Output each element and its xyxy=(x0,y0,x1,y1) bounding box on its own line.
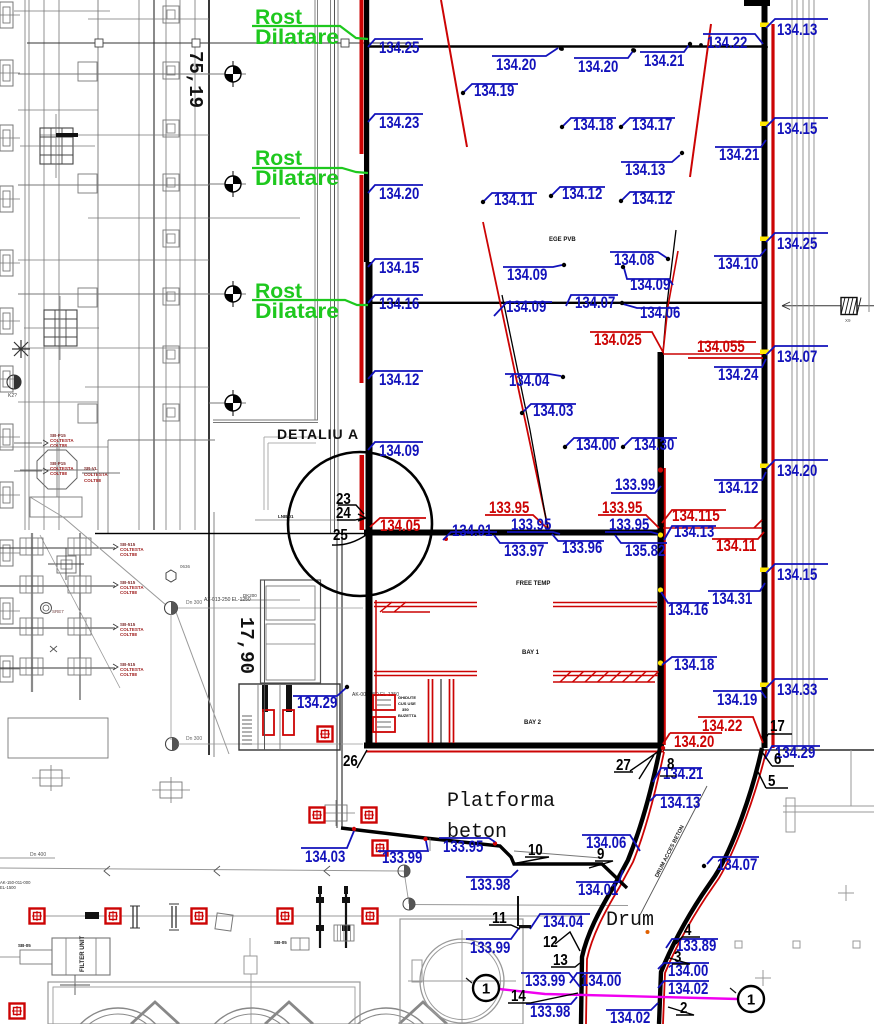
svg-text:133.95: 133.95 xyxy=(511,515,551,534)
svg-text:SB-05: SB-05 xyxy=(274,940,287,945)
svg-text:134.07: 134.07 xyxy=(717,855,757,874)
svg-text:134.04: 134.04 xyxy=(543,912,584,931)
svg-text:COLT88: COLT88 xyxy=(84,478,101,483)
svg-text:134.11: 134.11 xyxy=(494,190,534,209)
svg-text:COLT88: COLT88 xyxy=(120,552,137,557)
svg-text:134.06: 134.06 xyxy=(640,303,680,322)
svg-text:LNB/01: LNB/01 xyxy=(278,514,294,519)
svg-text:Dilatare: Dilatare xyxy=(255,26,339,49)
svg-text:134.02: 134.02 xyxy=(610,1008,650,1024)
svg-text:133.95: 133.95 xyxy=(609,515,649,534)
svg-text:134.12: 134.12 xyxy=(562,184,602,203)
svg-text:75,19: 75,19 xyxy=(184,51,206,108)
svg-text:BUZETTA: BUZETTA xyxy=(398,713,416,718)
svg-text:134.13: 134.13 xyxy=(674,522,714,541)
svg-text:Dilatare: Dilatare xyxy=(255,300,339,323)
svg-text:134.09: 134.09 xyxy=(379,441,419,460)
svg-text:COLT88: COLT88 xyxy=(50,471,67,476)
svg-text:134.09: 134.09 xyxy=(630,275,670,294)
svg-text:134.15: 134.15 xyxy=(777,119,817,138)
svg-text:350: 350 xyxy=(402,707,409,712)
svg-text:133.99: 133.99 xyxy=(615,475,655,494)
svg-text:134.22: 134.22 xyxy=(707,33,747,52)
svg-text:17: 17 xyxy=(770,718,785,735)
svg-text:134.13: 134.13 xyxy=(660,793,700,812)
svg-text:134.09: 134.09 xyxy=(506,297,546,316)
svg-text:134.12: 134.12 xyxy=(632,189,672,208)
svg-text:134.20: 134.20 xyxy=(777,461,817,480)
svg-text:SB-05: SB-05 xyxy=(18,943,31,948)
svg-text:134.00: 134.00 xyxy=(581,971,621,990)
svg-text:134.04: 134.04 xyxy=(509,371,550,390)
svg-text:134.12: 134.12 xyxy=(718,478,758,497)
svg-text:SRE7: SRE7 xyxy=(52,609,64,614)
svg-text:8: 8 xyxy=(667,756,674,773)
svg-text:0636: 0636 xyxy=(180,564,191,569)
svg-text:134.03: 134.03 xyxy=(305,847,345,866)
svg-text:CUS USE: CUS USE xyxy=(398,701,416,706)
svg-text:134.15: 134.15 xyxy=(777,565,817,584)
svg-text:133.99: 133.99 xyxy=(382,848,422,867)
svg-text:134.17: 134.17 xyxy=(632,115,672,134)
svg-text:133.97: 133.97 xyxy=(504,541,544,560)
svg-text:134.02: 134.02 xyxy=(668,979,708,998)
svg-text:133.98: 133.98 xyxy=(470,875,510,894)
svg-text:17,90: 17,90 xyxy=(235,617,257,674)
svg-text:134.19: 134.19 xyxy=(717,690,757,709)
svg-text:BAY 2: BAY 2 xyxy=(524,720,542,726)
svg-text:134.08: 134.08 xyxy=(614,250,654,269)
svg-text:134.18: 134.18 xyxy=(674,655,714,674)
svg-text:25: 25 xyxy=(333,527,348,544)
svg-text:134.15: 134.15 xyxy=(379,258,419,277)
svg-text:134.16: 134.16 xyxy=(379,294,419,313)
svg-text:Platforma: Platforma xyxy=(447,790,555,813)
svg-text:DETALIU A: DETALIU A xyxy=(277,426,359,442)
svg-text:COLT88: COLT88 xyxy=(120,590,137,595)
svg-text:X9: X9 xyxy=(845,318,851,323)
svg-text:134.20: 134.20 xyxy=(496,55,536,74)
svg-text:134.18: 134.18 xyxy=(573,115,613,134)
svg-text:134.20: 134.20 xyxy=(674,732,714,751)
svg-text:134.31: 134.31 xyxy=(712,589,752,608)
svg-text:133.99: 133.99 xyxy=(525,971,565,990)
svg-text:Dn 300: Dn 300 xyxy=(186,736,202,742)
svg-text:134.25: 134.25 xyxy=(777,234,817,253)
svg-text:COLT88: COLT88 xyxy=(120,672,137,677)
svg-text:134.07: 134.07 xyxy=(575,293,615,312)
svg-text:BAY 1: BAY 1 xyxy=(522,650,540,656)
svg-text:134.055: 134.055 xyxy=(697,337,745,356)
svg-text:134.29: 134.29 xyxy=(297,693,337,712)
svg-text:Dn 400: Dn 400 xyxy=(30,852,46,858)
svg-text:134.00: 134.00 xyxy=(576,435,616,454)
svg-text:EGE PVB: EGE PVB xyxy=(549,237,576,243)
svg-text:134.25: 134.25 xyxy=(379,38,419,57)
svg-text:1: 1 xyxy=(482,981,490,998)
svg-text:Drum: Drum xyxy=(606,909,654,932)
svg-text:134.025: 134.025 xyxy=(594,330,642,349)
svg-text:SB-VL: SB-VL xyxy=(84,466,98,471)
svg-text:134.13: 134.13 xyxy=(777,20,817,39)
svg-text:EL-1500: EL-1500 xyxy=(0,885,17,890)
svg-text:134.16: 134.16 xyxy=(668,600,708,619)
svg-text:FREE TEMP: FREE TEMP xyxy=(516,581,550,587)
svg-text:133.89: 133.89 xyxy=(676,936,716,955)
svg-text:133.98: 133.98 xyxy=(530,1002,570,1021)
svg-text:Dn 300: Dn 300 xyxy=(186,600,202,606)
svg-text:134.12: 134.12 xyxy=(379,370,419,389)
svg-text:134.01: 134.01 xyxy=(578,880,618,899)
svg-text:134.01: 134.01 xyxy=(452,521,492,540)
svg-text:134.10: 134.10 xyxy=(718,254,758,273)
svg-text:26: 26 xyxy=(343,753,358,770)
svg-text:K2?: K2? xyxy=(8,393,17,399)
svg-text:Dilatare: Dilatare xyxy=(255,167,339,190)
svg-text:134.30: 134.30 xyxy=(634,435,674,454)
svg-text:134.21: 134.21 xyxy=(644,51,684,70)
svg-text:134.13: 134.13 xyxy=(625,160,665,179)
svg-text:134.06: 134.06 xyxy=(586,833,626,852)
svg-text:134.05: 134.05 xyxy=(380,516,420,535)
svg-text:134.24: 134.24 xyxy=(718,365,759,384)
svg-text:134.33: 134.33 xyxy=(777,680,817,699)
svg-text:12: 12 xyxy=(543,934,558,951)
svg-text:FILTER UNIT: FILTER UNIT xyxy=(80,935,86,972)
svg-text:134.19: 134.19 xyxy=(474,81,514,100)
svg-text:133.96: 133.96 xyxy=(562,538,602,557)
svg-text:134.03: 134.03 xyxy=(533,401,573,420)
svg-text:DK200: DK200 xyxy=(243,593,257,598)
svg-text:134.09: 134.09 xyxy=(507,265,547,284)
svg-text:1: 1 xyxy=(747,992,755,1009)
svg-text:135.82: 135.82 xyxy=(625,541,665,560)
svg-text:133.99: 133.99 xyxy=(470,938,510,957)
svg-text:134.23: 134.23 xyxy=(379,113,419,132)
svg-text:134.20: 134.20 xyxy=(379,184,419,203)
svg-text:134.11: 134.11 xyxy=(716,536,756,555)
svg-text:134.20: 134.20 xyxy=(578,57,618,76)
svg-text:134.07: 134.07 xyxy=(777,347,817,366)
svg-text:133.95: 133.95 xyxy=(443,837,483,856)
svg-text:COLT88: COLT88 xyxy=(120,632,137,637)
svg-text:GHIDUTE: GHIDUTE xyxy=(398,695,416,700)
svg-text:134.21: 134.21 xyxy=(719,145,759,164)
